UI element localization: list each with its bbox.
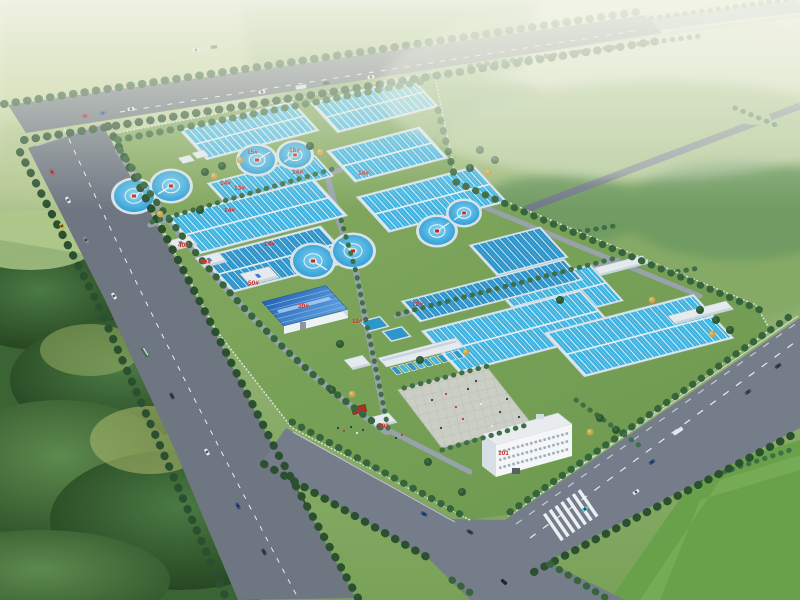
gatehouse-label: 102 <box>378 423 389 430</box>
scene-canvas: 13# 14# 14# 14# 14# 14# 12# 11# 15# 16# … <box>0 0 800 600</box>
admin-entrance <box>512 468 520 474</box>
basin-label: 12# <box>412 301 423 308</box>
admin-label: 101 <box>498 450 509 457</box>
building-label: 50# <box>248 280 259 287</box>
aerial-rendering-treatment-plant: 13# 14# 14# 14# 14# 14# 12# 11# 15# 16# … <box>0 0 800 600</box>
clarifier <box>290 243 336 280</box>
building-label: 40# <box>178 242 189 249</box>
building-label: 20# <box>200 259 211 266</box>
basin-label: 11# <box>352 318 363 325</box>
building-label: 30# <box>298 303 309 310</box>
basin-label: 14# <box>264 241 275 248</box>
